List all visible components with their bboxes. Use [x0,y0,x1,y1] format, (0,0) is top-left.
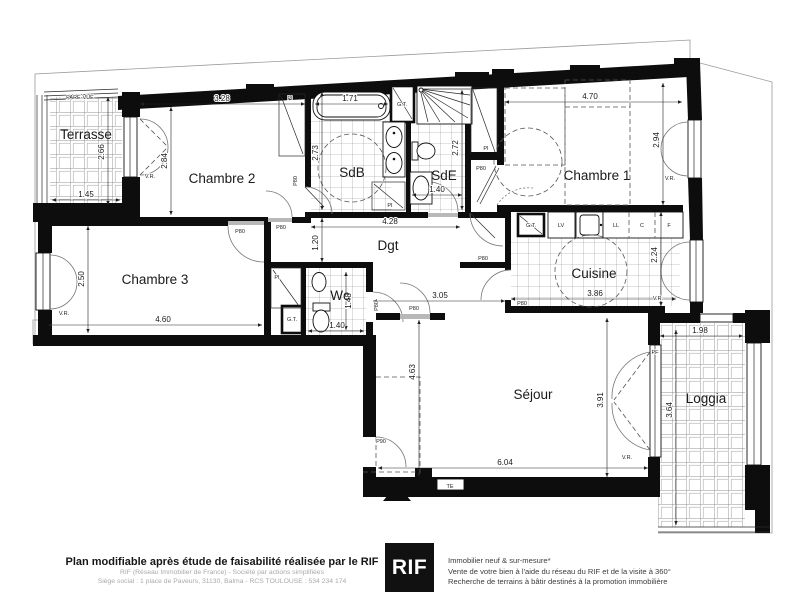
tag-vr-chambre2: V.R. [145,174,156,180]
cuisine-door [481,270,511,300]
tag-p80-sdb: P80 [293,176,299,186]
dim-sejour-height-left: 4.63 [408,364,417,380]
entry-zone-outline [376,377,420,477]
room-label-terrasse: Terrasse [60,127,112,142]
tag-pi-chambre1: PI [483,146,489,152]
rif-logo: RIF [385,543,434,592]
footer: Plan modifiable après étude de faisabili… [0,540,800,600]
dim-ch1-width: 4.70 [582,92,598,101]
dim-bathtub: 1.71 [342,94,358,103]
wc-toilet [313,303,330,332]
dim-dgt-width: 4.28 [382,217,398,226]
dim-entry-width: 3.05 [432,291,448,300]
shower [417,86,472,124]
tag-vr-cuisine: V.R. [653,296,664,302]
dim-ch2-width: 3.28 [214,94,230,103]
room-label-cuisine: Cuisine [571,266,616,281]
chambre3-window [36,253,77,310]
tag-pi-chambre3: PI [274,275,280,281]
tag-pi-chambre2: PI [287,96,293,102]
sejour-french-window [612,345,661,457]
chambre2-door [266,191,292,222]
chambre3-door [228,221,264,262]
chambre1-window [661,120,701,178]
dim-dgt-height: 1.20 [311,235,320,251]
dim-terrasse-height: 2.66 [97,144,106,160]
tag-p80-wc: P80 [374,301,380,311]
room-label-sejour: Séjour [513,387,553,402]
loggia-opening [700,314,733,322]
tag-p80-cuisine: P80 [517,301,527,307]
dim-sde-width: 1.40 [429,185,445,194]
room-label-loggia: Loggia [686,391,727,406]
tag-gt-wc: G.T. [287,317,298,323]
room-label-chambre1: Chambre 1 [564,168,631,183]
tag-p80-dgt: P80 [478,256,488,262]
footer-service-line3: Recherche de terrains à bâtir destinés à… [448,577,788,588]
dim-ch1-height: 2.94 [652,132,661,148]
footer-company-line1: RIF (Réseau Immobilier de France) - Soci… [42,569,402,578]
tag-p90-entrance: P90 [376,439,386,445]
dim-ch2-height: 2.84 [160,153,169,169]
room-label-wc: Wc [330,288,350,303]
loggia-tiles [658,323,745,527]
tag-p80-chambre2: P80 [276,225,286,231]
dim-loggia-width: 1.98 [692,326,708,335]
room-label-chambre3: Chambre 3 [122,272,189,287]
tag-pf: PF [651,350,659,356]
dim-ch3-height: 2.50 [77,271,86,287]
tag-vr-sejour: V.R. [622,455,633,461]
tag-pare-vue: PARE-VUE [66,95,94,101]
sde-toilet [412,142,435,160]
room-label-dgt: Dgt [377,238,398,253]
floor-plan-drawing: 3.28 2.84 2.66 1.45 1.71 2.73 1.40 2.72 … [0,0,800,540]
entrance-door [363,437,420,472]
chambre1-wardrobe [505,88,565,165]
dim-ch3-width: 4.60 [155,315,171,324]
room-label-sdb: SdB [339,165,365,180]
dim-sde-height: 2.72 [451,140,460,156]
room-label-chambre2: Chambre 2 [189,171,256,186]
dim-sejour-width: 6.04 [497,458,513,467]
dim-cuisine-height: 2.24 [650,247,659,263]
tag-p80-sejour: P80 [409,306,419,312]
tag-pi-sdb: PI [387,203,393,209]
tag-lv: LV [558,223,565,229]
dim-terrasse-width: 1.45 [78,190,94,199]
dim-wc-width: 1.40 [329,321,345,330]
dim-sdb-height: 2.73 [311,145,320,161]
dim-loggia-height: 3.64 [665,402,674,418]
wc-sink [312,273,326,292]
tag-p80-chambre1: P80 [476,166,486,172]
tag-vr-chambre1: V.R. [665,176,676,182]
tag-vr-chambre3: V.R. [59,311,70,317]
chambre1-clearance-circle [494,128,562,196]
tag-c: C [640,223,644,229]
floor-plan-page: 3.28 2.84 2.66 1.45 1.71 2.73 1.40 2.72 … [0,0,800,600]
footer-service-line1: Immobilier neuf & sur-mesure* [448,556,788,567]
tag-gt-cuisine: G.T. [526,223,537,229]
footer-left-block: Plan modifiable après étude de faisabili… [42,556,402,586]
dim-sejour-height-right: 3.91 [596,392,605,408]
footer-services-block: Immobilier neuf & sur-mesure* Vente de v… [448,556,788,588]
footer-company-line2: Siège social : 1 place de Paveurs, 31130… [42,578,402,587]
tag-gt-sdb: G.T. [397,102,408,108]
tag-te: TE [446,484,453,490]
tag-p80-chambre3: P80 [235,229,245,235]
tag-ll: LL [613,223,619,229]
footer-service-line2: Vente de votre bien à l'aide du réseau d… [448,567,788,578]
loggia-window [747,343,761,465]
room-label-sde: SdE [431,168,457,183]
footer-disclaimer: Plan modifiable après étude de faisabili… [42,556,402,569]
dim-cuisine-width: 3.86 [587,289,603,298]
